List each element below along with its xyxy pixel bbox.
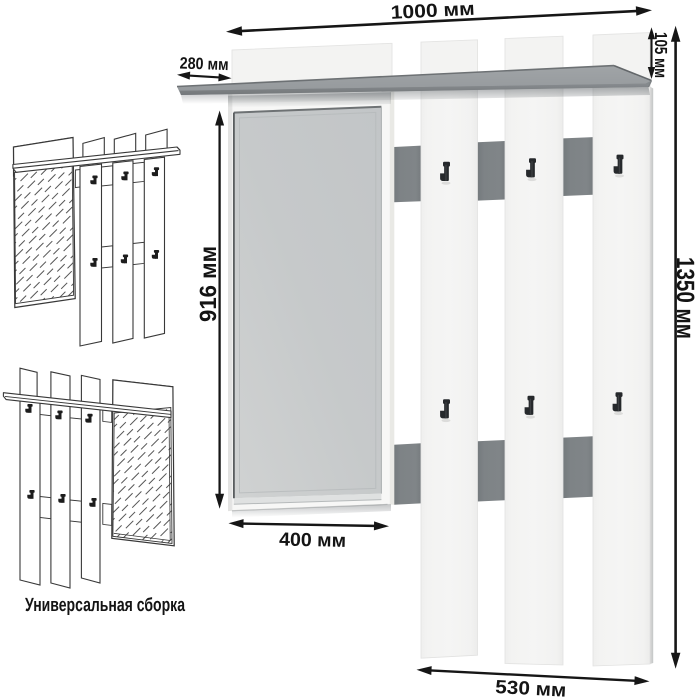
svg-text:Универсальная сборка: Универсальная сборка: [25, 595, 185, 616]
svg-text:530 мм: 530 мм: [495, 677, 567, 700]
svg-text:400 мм: 400 мм: [279, 530, 346, 552]
svg-text:280 мм: 280 мм: [179, 54, 229, 74]
svg-text:105 мм: 105 мм: [651, 32, 671, 78]
svg-text:1350 мм: 1350 мм: [671, 257, 699, 339]
svg-text:916 мм: 916 мм: [195, 246, 221, 322]
